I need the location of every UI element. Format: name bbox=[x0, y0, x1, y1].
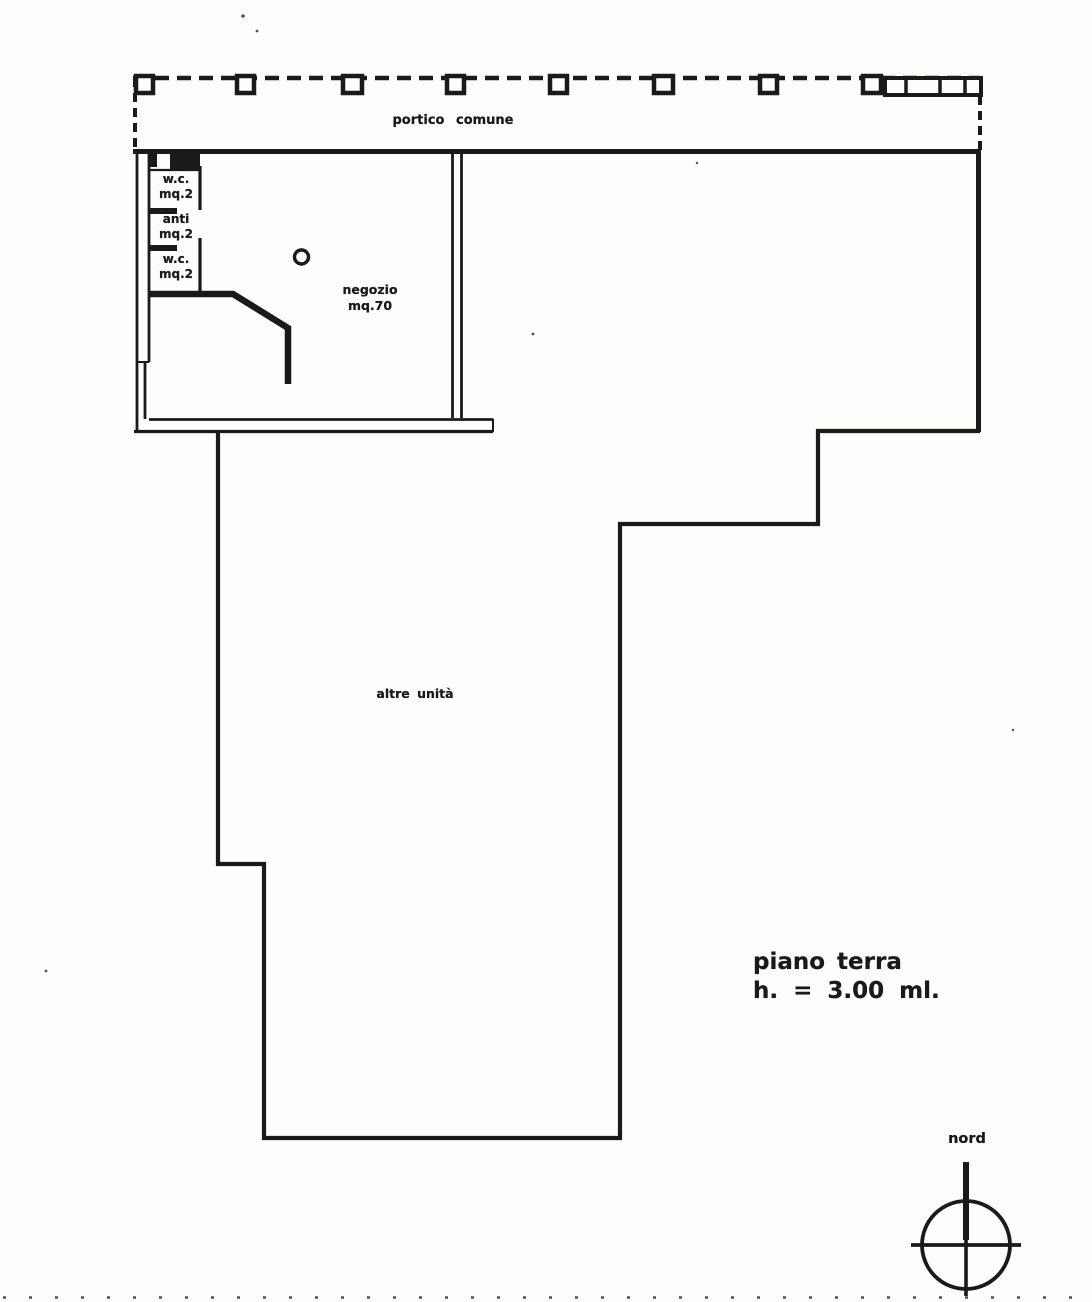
pillar-icon bbox=[343, 76, 362, 93]
pillar-icon bbox=[237, 76, 254, 93]
wall-block bbox=[170, 150, 200, 169]
room-area: mq.2 bbox=[150, 267, 202, 282]
floor-title: piano terra h. = 3.00 ml. bbox=[753, 948, 973, 1006]
altre-unita-boundary bbox=[218, 431, 980, 1138]
room-label-anti: anti mq.2 bbox=[150, 212, 202, 242]
floor-height-note: h. = 3.00 ml. bbox=[753, 977, 973, 1006]
pillar-icon bbox=[654, 76, 673, 93]
room-name: negozio bbox=[330, 282, 410, 298]
column-icon bbox=[295, 250, 309, 264]
scan-artifacts bbox=[3, 14, 1092, 1297]
portico-end-wall-strip bbox=[885, 78, 981, 95]
pillar-icon bbox=[863, 76, 881, 93]
room-label-negozio: negozio mq.70 bbox=[330, 282, 410, 313]
pillar-icon bbox=[136, 76, 153, 93]
room-label-altre-unita: altre unità bbox=[360, 686, 470, 701]
room-name: anti bbox=[150, 212, 202, 227]
pillar-icon bbox=[760, 76, 777, 93]
room-area: mq.70 bbox=[330, 298, 410, 314]
wall-stub bbox=[148, 151, 157, 167]
room-area: mq.2 bbox=[150, 227, 202, 242]
floorplan-page: portico comune w.c. mq.2 anti mq.2 w.c. … bbox=[0, 0, 1092, 1302]
counter-wall bbox=[150, 294, 288, 384]
room-name: w.c. bbox=[150, 252, 202, 267]
portico-colonnade bbox=[133, 76, 981, 150]
negozio-left-wall-inner bbox=[145, 152, 149, 419]
room-label-wc-bottom: w.c. mq.2 bbox=[150, 252, 202, 282]
compass-label: nord bbox=[944, 1131, 990, 1147]
room-name: w.c. bbox=[150, 172, 202, 187]
room-label-wc-top: w.c. mq.2 bbox=[150, 172, 202, 202]
floor-title-line1: piano terra bbox=[753, 948, 973, 977]
negozio-right-wall bbox=[453, 153, 462, 418]
portico-label: portico comune bbox=[388, 113, 518, 128]
pillar-icon bbox=[447, 76, 464, 93]
compass-icon bbox=[911, 1162, 1021, 1296]
room-area: mq.2 bbox=[150, 187, 202, 202]
pillar-icon bbox=[550, 76, 567, 93]
